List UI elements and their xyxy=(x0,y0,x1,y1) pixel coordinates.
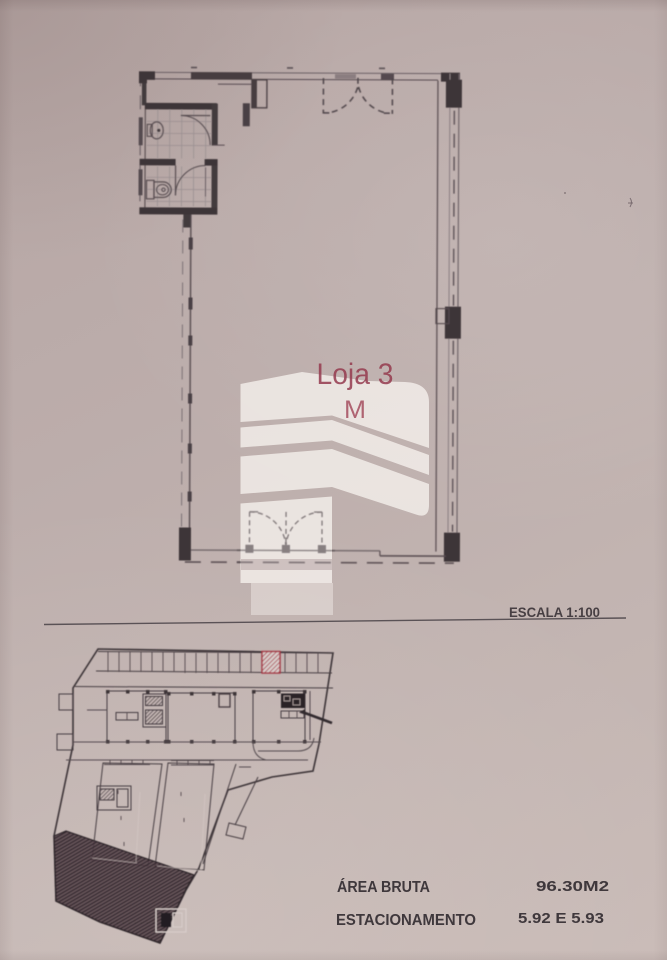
svg-text:96.30M2: 96.30M2 xyxy=(536,878,609,895)
svg-text:ESTACIONAMENTO: ESTACIONAMENTO xyxy=(336,912,476,929)
svg-text:5.92 E 5.93: 5.92 E 5.93 xyxy=(518,910,604,927)
svg-text:Loja 3: Loja 3 xyxy=(317,358,394,391)
svg-text:M: M xyxy=(344,396,366,424)
svg-text:ESCALA 1:100: ESCALA 1:100 xyxy=(509,604,600,620)
svg-text:ÁREA BRUTA: ÁREA BRUTA xyxy=(337,879,430,896)
